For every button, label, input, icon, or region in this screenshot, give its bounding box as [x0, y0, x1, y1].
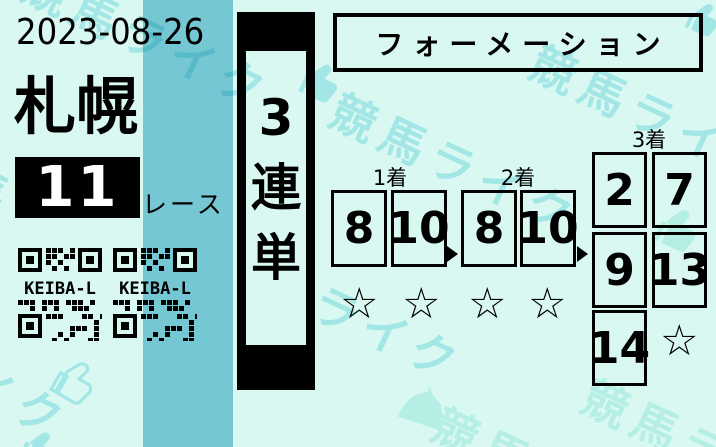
venue-name: 札幌 — [14, 76, 138, 138]
horse-number-box: 7 — [652, 152, 707, 228]
bet-type-box: 3 連 単 — [243, 48, 309, 348]
horse-number: 7 — [664, 165, 695, 216]
horse-head-icon — [390, 373, 455, 437]
race-number-box: 11 — [15, 157, 140, 218]
bet-type-char: 単 — [246, 223, 306, 293]
star-icon: ☆ — [402, 283, 441, 326]
horse-number: 14 — [589, 323, 650, 374]
star-icon: ☆ — [468, 283, 507, 326]
star-icon: ☆ — [340, 283, 379, 326]
second-place-label: 2着 — [490, 162, 546, 192]
qr-top-pattern-icon — [113, 248, 197, 274]
qr-code-icon: KEIBA-L — [18, 248, 102, 337]
horse-number: 8 — [344, 203, 375, 254]
betting-ticket: { "ticket": { "date": "2023-08-26", "ven… — [0, 0, 716, 447]
bet-method-box: フォーメーション — [333, 13, 703, 72]
horse-number: 10 — [517, 203, 578, 254]
bet-type-char: 連 — [246, 153, 306, 223]
thumbs-up-icon — [44, 350, 107, 413]
watermark-text: ライク — [302, 268, 476, 396]
third-place-label: 3着 — [621, 124, 677, 154]
horse-number: 9 — [604, 245, 635, 296]
horse-number-box: 9 — [592, 232, 647, 308]
thumbs-up-icon — [13, 421, 66, 447]
bet-type-char: 3 — [246, 83, 306, 153]
ticket-color-band — [143, 0, 233, 447]
horse-number-box: 8 — [331, 190, 387, 267]
horse-number-box: 13 — [652, 232, 707, 308]
qr-bottom-pattern-icon — [113, 300, 197, 341]
horse-number: 10 — [388, 203, 449, 254]
qr-top-pattern-icon — [18, 248, 102, 274]
bet-method-label: フォーメーション — [375, 23, 669, 63]
qr-label: KEIBA-L — [18, 278, 102, 300]
star-icon: ☆ — [660, 320, 699, 363]
arrow-right-icon — [577, 246, 588, 262]
horse-number: 2 — [604, 165, 635, 216]
watermark-text: イク — [0, 348, 82, 447]
qr-code-icon: KEIBA-L — [113, 248, 197, 337]
horse-number-box: 14 — [592, 310, 647, 386]
race-number: 11 — [36, 160, 120, 216]
star-icon: ☆ — [528, 283, 567, 326]
watermark-text: 競馬ライク — [422, 390, 694, 447]
arrow-right-icon — [447, 246, 458, 262]
qr-label: KEIBA-L — [113, 278, 197, 300]
horse-number-box: 10 — [520, 190, 576, 267]
race-date: 2023-08-26 — [16, 12, 204, 53]
horse-number-box: 2 — [592, 152, 647, 228]
qr-bottom-pattern-icon — [18, 300, 102, 341]
horse-number-box: 10 — [391, 190, 447, 267]
horse-number-box: 8 — [461, 190, 517, 267]
first-place-label: 1着 — [362, 162, 418, 192]
horse-number: 8 — [474, 203, 505, 254]
horse-number: 13 — [649, 245, 710, 296]
race-label: レース — [142, 185, 225, 221]
